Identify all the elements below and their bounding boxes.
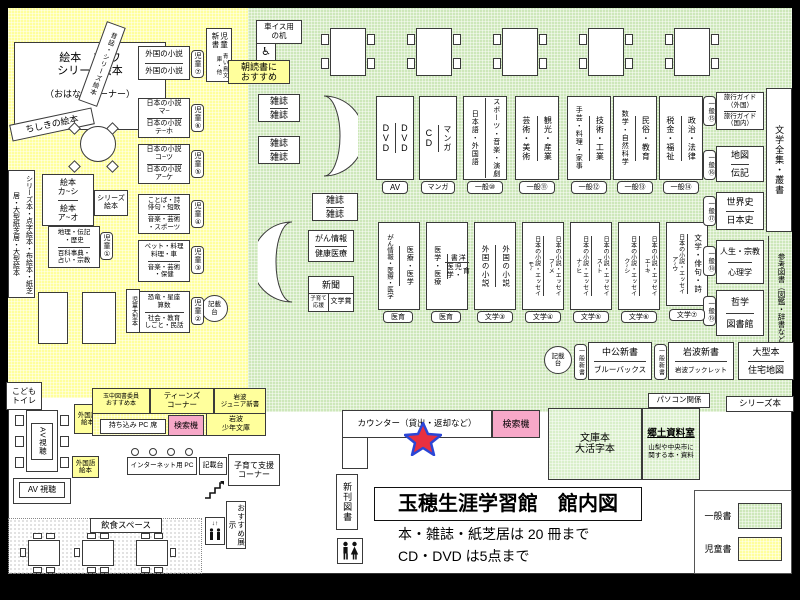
chair (15, 436, 24, 447)
shelf-badge-ippan18: 一般⑱ (703, 246, 716, 276)
shelf-philosophy-library: 哲学図書館 (716, 290, 764, 336)
shelf-foreign-novels-children: 外国の小説外国の小説 (138, 46, 190, 80)
chair (493, 34, 501, 45)
chair (539, 34, 547, 45)
search-terminal: 検索機 (492, 410, 540, 438)
chair (711, 34, 719, 45)
chair (100, 533, 109, 539)
shelf-large-books-housing-maps: 大型本住宅地図 (738, 342, 794, 380)
shelf-badge-shinsho: 一般新書 (654, 344, 667, 380)
crescent-desk (320, 94, 358, 178)
shelf-words-poetry: ことば・詩 俳句・短歌音楽・芸術 ・スポーツ (138, 194, 190, 234)
chair (579, 58, 587, 69)
chair (367, 34, 375, 45)
shelf-world-japan-history: 世界史日本史 (716, 192, 764, 230)
crescent-desk (258, 220, 296, 304)
chair (321, 58, 329, 69)
stool (185, 448, 193, 456)
chair (367, 58, 375, 69)
shelf-jp-novels-ko: 日本の小説 コ~ツ日本の小説 ア~ケ (138, 144, 190, 184)
local-history-room-title: 郷土資料室 (647, 429, 695, 440)
shelf-children-large-books: 児童大型本 (126, 289, 140, 333)
legend-children-swatch (738, 537, 782, 561)
chair (539, 58, 547, 69)
chair (141, 567, 150, 573)
shelf-badge-ippan16: 一般⑯ (703, 150, 716, 180)
shelf-badge-jido3: 児童③ (191, 246, 204, 274)
shelf-badge-jido7: 児童⑦ (191, 50, 204, 78)
shelf-cd-manga: CDマンガ (419, 96, 457, 180)
shelf-cancer-medical: がん情報・医療・医学医療・医学 (378, 222, 420, 310)
bluebird-bunko-label: 青い鳥文庫・他 (210, 51, 227, 80)
shelf-iwanami-shonen-bunko: 岩波 少年文庫 (206, 413, 266, 436)
reading-table (588, 28, 624, 76)
shelf-badge-manga: マンガ (421, 181, 455, 194)
shelf-handicraft-engineering: 手芸・料理・家事技術・工業 (567, 96, 611, 180)
shelf-block (82, 292, 116, 344)
chair (154, 533, 163, 539)
shelf-jp-novels-ku: 日本の小説・エッセイ ク~シ日本の小説・エッセイ エ~キ (618, 222, 660, 310)
wheelchair-icon: ♿ (256, 43, 276, 61)
eating-space-label: 飲食スペース (90, 518, 162, 533)
shelf-badge-bungaku4: 文学④ (525, 311, 561, 323)
chair (407, 58, 415, 69)
chair (60, 457, 69, 468)
legend-children-label: 児童書 (704, 544, 731, 554)
shelf-bunko-large-print: 文庫本 大活字本 (548, 408, 642, 480)
chair (46, 533, 55, 539)
shelf-foreign-novels: 外国の小説外国の小説 (474, 222, 516, 310)
writing-desk-children: 記載 台 (201, 295, 228, 322)
counter-return-leg (342, 437, 368, 469)
shelf-badge-jido4: 児童④ (191, 200, 204, 228)
chair (711, 58, 719, 69)
shelf-badge-ippan15: 一般⑮ (703, 96, 716, 126)
av-viewing-label: AV視聴 (31, 423, 53, 460)
shelf-newspaper: 新聞 子育て 応援 文学賞 (308, 276, 354, 312)
chair (154, 567, 163, 573)
shelf-badge-bungaku3: 文学③ (477, 311, 513, 323)
chair (493, 58, 501, 69)
internet-pc-desk: インターネット用 PC (127, 457, 197, 475)
chair (407, 34, 415, 45)
eating-table (28, 540, 60, 566)
byod-pc-seats: 持ち込み PC 席 (100, 419, 166, 434)
shelf-dvd: DVDDVD (376, 96, 414, 180)
chair (60, 415, 69, 426)
shelf-badge-jido1: 児童① (100, 232, 113, 260)
map-title: 玉穂生涯学習館 館内図 (374, 487, 642, 521)
shelf-iwanami-junior-shinsho: 岩波 ジュニア新書 (214, 388, 266, 414)
shelf-dinosaur-society: 恐竜・星座 算数社会・教育 しごと・民話 (138, 291, 190, 333)
shelf-language-sports: 日本語・外国語スポーツ・音楽・演劇 (463, 96, 507, 180)
reading-table (674, 28, 710, 76)
legend-general-swatch (738, 503, 782, 529)
shelf-badge-jido6: 児童⑥ (191, 104, 204, 132)
chair (15, 415, 24, 426)
shelf-tax-politics: 税金・福祉政治・法律 (659, 96, 703, 180)
chair (33, 533, 42, 539)
shelf-badge-ippan14: 一般⑭ (663, 181, 699, 194)
wheelchair-desk: 車イス用 の机 (256, 20, 302, 44)
children-toilet: こども トイレ (6, 382, 42, 410)
chair (321, 34, 329, 45)
shelf-jp-novels-mo: 日本の小説・エッセイ モ~日本の小説・エッセイ フ~メ (522, 222, 564, 310)
shelf-series-braille-kamishibai-wall: シリーズ本・点字絵本・布絵本・紙芝居・大型紙芝居・大型絵本 (8, 170, 35, 298)
shelf-badge-jido2: 児童② (191, 297, 204, 325)
chair (87, 533, 96, 539)
shelf-school-committee-recommend: 玉中図書委員 おすすめ本 (92, 388, 150, 414)
chair (625, 58, 633, 69)
teens-corner: ティーンズ コーナー (150, 388, 214, 414)
shelf-pets-cooking: ペット・料理 料理・車音楽・芸術 ・保健 (138, 240, 190, 282)
shelf-math-folklore: 数学・自然科学民俗・教育 (613, 96, 657, 180)
shelf-badge-ippan11: 一般⑪ (519, 181, 555, 194)
chair (20, 548, 26, 557)
shelf-badge-shinsho: 一般新書 (574, 344, 587, 380)
writing-desk-general: 記載 台 (544, 346, 572, 374)
shelf-cancer-info-health: がん情報健康医療 (308, 230, 354, 262)
search-terminal-2: 検索機 (168, 415, 204, 436)
lending-rule-av: CD・DVD は5点まで (398, 546, 658, 566)
chair (15, 457, 24, 468)
shelf-iwanami-shinsho: 岩波新書岩波ブックレット (668, 342, 734, 380)
shelf-badge-bungaku5: 文学⑤ (573, 311, 609, 323)
chair (46, 567, 55, 573)
eating-table (136, 540, 168, 566)
chair (453, 58, 461, 69)
shelf-chuko-shinsho: 中公新書ブルーバックス (588, 342, 652, 380)
chair (141, 533, 150, 539)
shelf-magazines: 雑誌雑誌 (258, 136, 300, 164)
floor-map: 絵本 ス~ワ シリーズ絵本 （おはなしコーナー） 昔話・シリーズ絵本 ちしきの絵… (0, 0, 800, 600)
shelf-series-books: シリーズ本 (726, 396, 794, 412)
chair (170, 548, 176, 557)
chair (665, 34, 673, 45)
legend: 一般書 児童書 (694, 490, 792, 574)
literary-prize-books: 文学賞 (328, 294, 353, 311)
childcare-support-books: 子育て 応援 (309, 294, 328, 311)
local-history-room-desc: 山梨や中央市に 関する本・資料 (648, 444, 694, 459)
shelf-picture-books-ka: 絵本 カ~シ絵本 ア~オ (42, 174, 94, 226)
shelf-foreign-picture-books: 外国語 絵本 (72, 456, 99, 478)
shelf-jp-novels-na: 日本の小説・エッセイ ナ~ヒ日本の小説・エッセイ ス~ト (570, 222, 612, 310)
shelf-block (38, 292, 68, 344)
chair (100, 567, 109, 573)
chair (625, 34, 633, 45)
shelf-literature-collections: 文学全集・叢書 (766, 88, 792, 232)
stool (131, 448, 139, 456)
chair (87, 567, 96, 573)
newspaper-label: 新聞 (309, 277, 353, 294)
shelf-badge-ippan12: 一般⑫ (571, 181, 607, 194)
shelf-jp-novels-ma: 日本の小説 マ~日本の小説 テ~ホ (138, 98, 190, 138)
eating-table (82, 540, 114, 566)
chair (453, 34, 461, 45)
reading-table (330, 28, 366, 76)
shelf-magazines: 雑誌雑誌 (258, 94, 300, 122)
shelf-life-religion-psychology: 人生・宗教心理学 (716, 240, 764, 284)
shelf-travel-guides: 旅行ガイド （外国）旅行ガイド （国内） (716, 92, 764, 130)
shelf-series-picture-books-small: シリーズ 絵本 (94, 190, 128, 216)
shelf-badge-ippan17: 一般⑰ (703, 196, 716, 226)
you-are-here-star-icon (404, 422, 442, 456)
legend-general-label: 一般書 (704, 511, 731, 521)
stairs-icon (203, 481, 225, 499)
shelf-computer-books: パソコン関係 (648, 393, 710, 408)
shelf-geography-encyclopedia: 地理・伝記 ・歴史百科事典・ 占い・宗教 (48, 226, 100, 268)
chair (579, 34, 587, 45)
shelf-badge-av: AV (382, 181, 408, 194)
shelf-new-arrivals: 新刊図書 (336, 474, 358, 530)
chair (74, 548, 80, 557)
chair (33, 567, 42, 573)
stool (149, 448, 157, 456)
shelf-badge-bungaku6: 文学⑥ (621, 311, 657, 323)
recommended-display: おすすめ展示 (226, 501, 246, 549)
shelf-badge-bungaku7: 文学⑦ (669, 309, 705, 321)
reading-table (416, 28, 452, 76)
stool (167, 448, 175, 456)
shelf-art-tourism: 芸術・美術観光・産業 (515, 96, 559, 180)
writing-desk-lobby: 記載台 (199, 457, 227, 475)
shelf-magazines: 雑誌雑誌 (312, 193, 358, 221)
local-history-room: 郷土資料室 山梨や中央市に 関する本・資料 (642, 408, 700, 480)
av-viewing-booth-label: AV 視聴 (19, 482, 65, 498)
shelf-badge-ippan19: 一般⑲ (703, 296, 716, 326)
elevator-icon: ↓↑ (205, 517, 225, 545)
shelf-badge-ippan13: 一般⑬ (617, 181, 653, 194)
shelf-badge-iiku: 医育 (431, 311, 461, 323)
chair (60, 436, 69, 447)
lending-rule-books: 本・雑誌・紙芝居は 20 冊まで (398, 524, 658, 544)
shelf-maps-biography: 地図伝記 (716, 146, 764, 182)
reading-table (502, 28, 538, 76)
shelf-badge-jido5: 児童⑤ (191, 150, 204, 178)
chair (665, 58, 673, 69)
shelf-medical-foreign-childcare: 医学・医療 洋書 育児・医学 (426, 222, 468, 310)
children-shinsho-label: 児童新書 (210, 30, 227, 51)
childcare-support-corner: 子育て支援 コーナー (228, 454, 280, 486)
shelf-badge-iiku: 医育 (383, 311, 413, 323)
restroom-icon (337, 538, 363, 564)
morning-reading-recommend: 朝読書に おすすめ (228, 60, 290, 84)
shelf-jp-novels-a-haiku: 日本の小説・エッセイ ア~ウ文学・俳句・詩 (666, 222, 708, 306)
shelf-badge-ippan10: 一般⑩ (467, 181, 503, 194)
